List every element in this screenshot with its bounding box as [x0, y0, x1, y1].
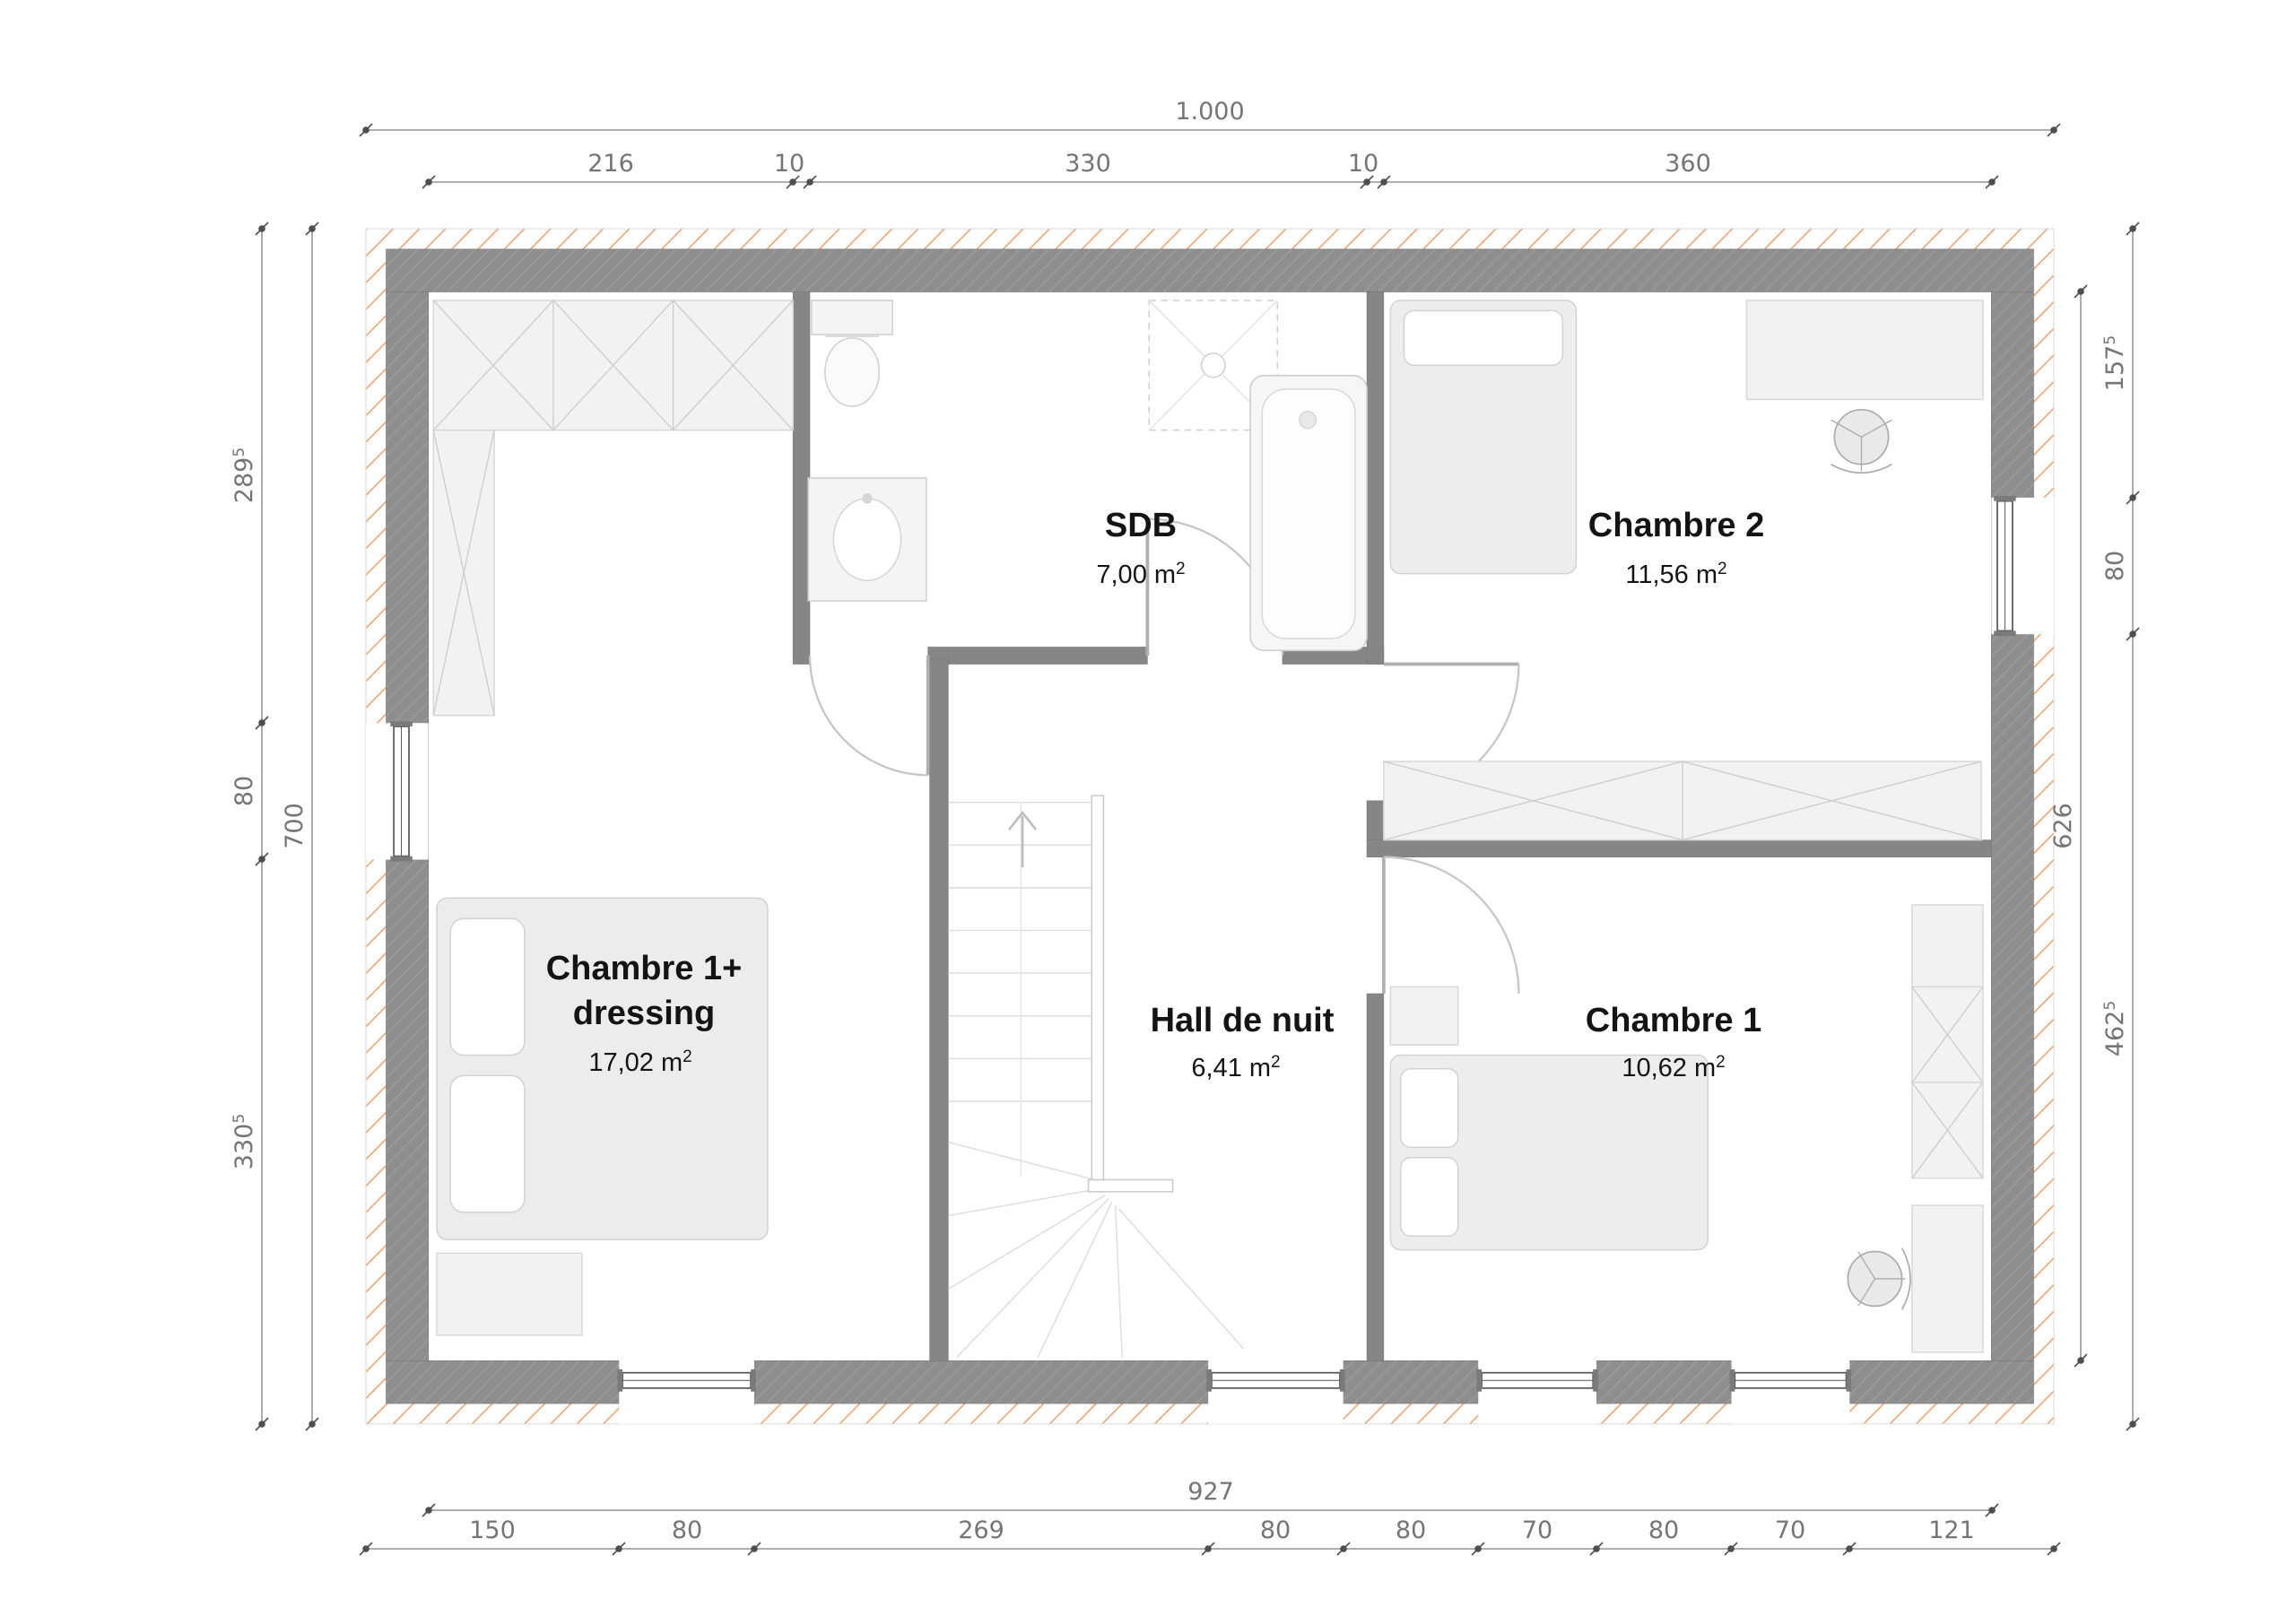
window-bottom-4	[1730, 1358, 1852, 1424]
dim-top-seg-330: 330	[1065, 150, 1111, 178]
dim-bottom-seg-70b: 70	[1775, 1517, 1805, 1544]
desk-chambre2	[1746, 300, 1982, 399]
room-label-chambre1-dressing-line1: Chambre 1+	[546, 950, 743, 987]
dim-bottom-total-927: 927	[1187, 1478, 1234, 1506]
wall-hall-chambre1	[1367, 994, 1384, 1360]
window-bottom-3	[1476, 1358, 1598, 1424]
window-left	[366, 721, 429, 861]
dim-bottom-seg-269: 269	[958, 1517, 1004, 1544]
dim-bottom-seg-80d: 80	[1648, 1517, 1679, 1544]
wall-sdb-south-west	[928, 647, 1148, 664]
window-bottom-1	[617, 1358, 755, 1424]
room-label-chambre1: Chambre 1	[1586, 1002, 1761, 1039]
window-bottom-2	[1206, 1358, 1344, 1424]
bed-chambre2	[1390, 300, 1576, 574]
dimensions-left: 2895 80 3305 700	[230, 222, 318, 1430]
room-label-chambre2: Chambre 2	[1588, 507, 1764, 544]
dim-top-seg-216: 216	[587, 150, 634, 178]
dim-bottom-seg-80c: 80	[1396, 1517, 1426, 1544]
wall-sdb-east	[1367, 291, 1384, 664]
window-right	[1991, 496, 2054, 636]
stair-rail	[1091, 795, 1103, 1185]
wardrobe-chambre1	[1912, 905, 1983, 1178]
bed-chambre1	[1390, 1056, 1708, 1250]
dim-left-seg-80: 80	[230, 776, 258, 806]
dimensions-bottom: 927 150 80 269 80 80 70 80 70 121	[360, 1478, 2060, 1555]
room-area-chambre1-dressing: 17,02 m2	[588, 1047, 691, 1077]
wall-hall-chambre2-stub	[1367, 801, 1384, 840]
dim-bottom-seg-80a: 80	[672, 1517, 702, 1544]
dim-right-seg-80: 80	[2101, 551, 2129, 581]
dim-bottom-seg-121: 121	[1928, 1517, 1975, 1544]
dim-left-total-700: 700	[281, 803, 309, 849]
dim-bottom-seg-150: 150	[469, 1517, 516, 1544]
room-area-chambre1: 10,62 m2	[1622, 1053, 1725, 1082]
dim-bottom-seg-70a: 70	[1522, 1517, 1552, 1544]
wardrobe-left	[433, 430, 494, 716]
wardrobe-chambre2	[1384, 761, 1981, 840]
dim-bottom-seg-80b: 80	[1260, 1517, 1291, 1544]
nightstand-chambre1	[1390, 987, 1457, 1045]
bathtub	[1250, 376, 1367, 651]
dim-left-seg-2895: 2895	[230, 448, 258, 503]
dim-top-total: 1.000	[1175, 98, 1244, 126]
room-label-chambre1-dressing-line2: dressing	[573, 995, 715, 1032]
wall-sdb-west	[793, 291, 810, 664]
wardrobe-top	[433, 300, 793, 430]
dim-right-inner-626: 626	[2049, 803, 2077, 849]
dim-left-seg-3305: 3305	[230, 1114, 258, 1169]
dimensions-top: 1.000 216 10 330 10 360	[360, 98, 2060, 188]
washbasin	[808, 478, 926, 601]
desk-chambre1	[1912, 1205, 1983, 1352]
floor-plan-page: SDB 7,00 m2 Chambre 2 11,56 m2 Chambre 1…	[0, 0, 2296, 1608]
wall-chambre2-chambre1	[1367, 840, 1991, 857]
dim-right-seg-1575: 1575	[2101, 335, 2129, 391]
dim-right-seg-4625: 4625	[2101, 1001, 2129, 1056]
stair-rail-cap	[1088, 1180, 1172, 1192]
dim-top-seg-360: 360	[1665, 150, 1711, 178]
room-label-sdb: SDB	[1105, 507, 1177, 544]
room-area-hall-de-nuit: 6,41 m2	[1191, 1053, 1280, 1082]
room-area-sdb: 7,00 m2	[1096, 560, 1185, 589]
dim-top-seg-10a: 10	[774, 150, 804, 178]
wall-stairwell-west	[930, 659, 949, 1361]
dim-top-seg-10b: 10	[1348, 150, 1378, 178]
floor-plan-canvas: SDB 7,00 m2 Chambre 2 11,56 m2 Chambre 1…	[0, 0, 2296, 1608]
plan-drawing	[366, 229, 2054, 1424]
dimensions-right: 626 1575 80 4625	[2049, 222, 2139, 1430]
bench	[437, 1253, 582, 1334]
room-label-hall-de-nuit: Hall de nuit	[1151, 1002, 1335, 1039]
room-area-chambre2: 11,56 m2	[1625, 560, 1726, 589]
